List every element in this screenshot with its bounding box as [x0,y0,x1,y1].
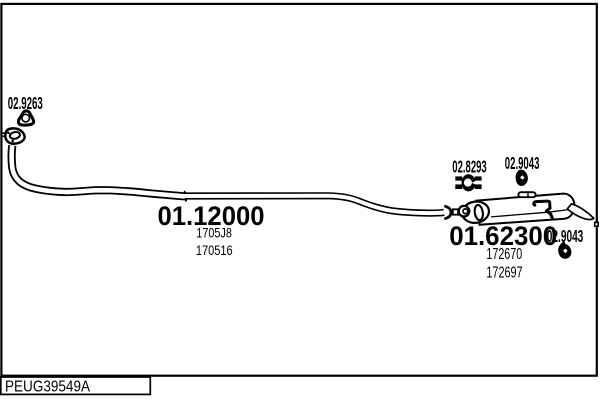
svg-text:02.8293: 02.8293 [452,157,487,177]
svg-text:PEUG39549A: PEUG39549A [5,378,91,395]
svg-text:1705J8: 1705J8 [196,225,232,240]
svg-text:02.9043: 02.9043 [547,226,584,246]
svg-text:170516: 170516 [196,243,233,258]
svg-text:172697: 172697 [486,264,522,281]
svg-text:172670: 172670 [486,246,522,263]
